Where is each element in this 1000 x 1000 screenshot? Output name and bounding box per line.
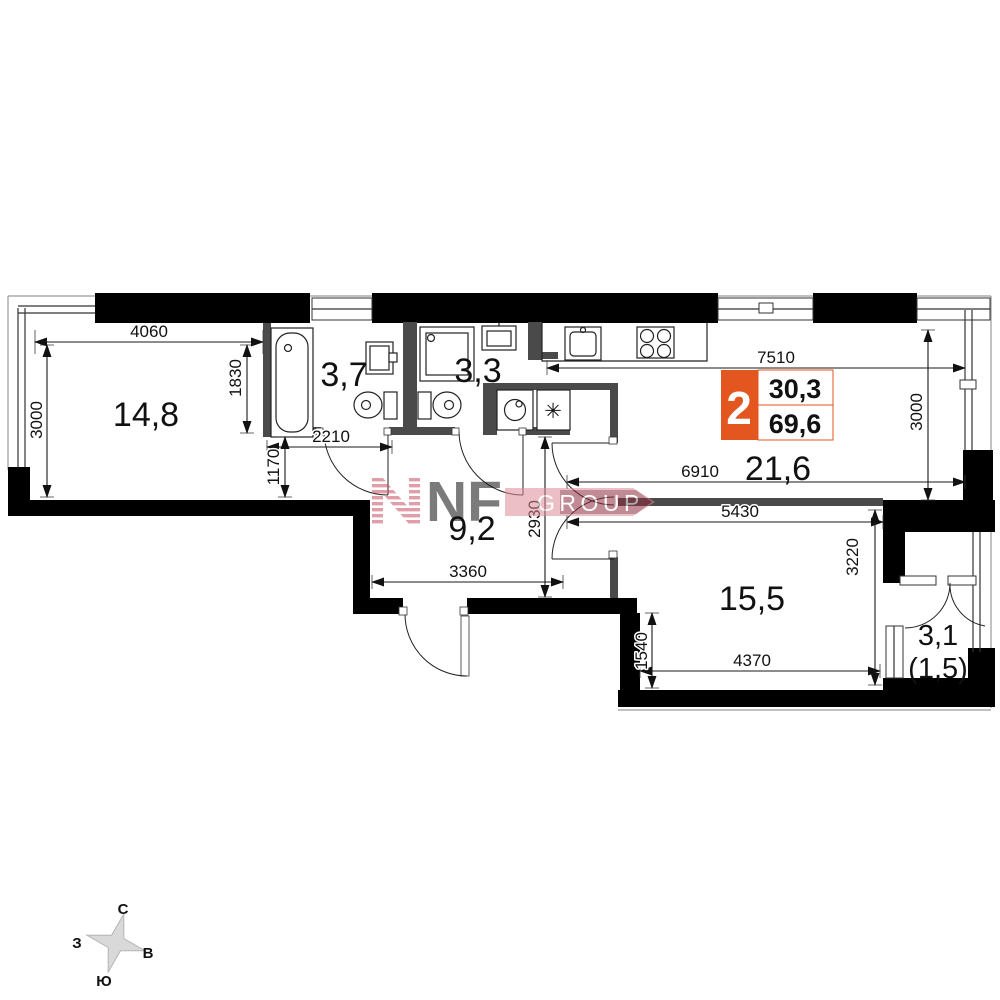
toilet-bath-small xyxy=(418,392,461,419)
partition xyxy=(417,427,455,435)
kitchen-counter xyxy=(542,323,707,361)
dim-label: 1170 xyxy=(264,449,283,486)
dim-label: 4370 xyxy=(733,651,771,670)
watermark-logo-text: NF xyxy=(426,470,502,534)
watermark: NF GROUP xyxy=(370,470,655,534)
window-top-left xyxy=(18,306,95,313)
room-label-bedroom: 15,5 xyxy=(719,580,785,618)
dim-label: 2210 xyxy=(312,427,350,446)
room-label-balcony-reduced: (1,5) xyxy=(908,653,968,685)
watermark-group-text: GROUP xyxy=(537,490,644,516)
dim-label: 5430 xyxy=(721,502,759,521)
room-label-kitchen-living: 21,6 xyxy=(745,450,811,488)
room-label-bathroom-small: 3,3 xyxy=(454,352,501,390)
washing-machine xyxy=(497,390,533,430)
sink-bath-large xyxy=(366,342,397,374)
wall xyxy=(467,598,637,614)
partition xyxy=(483,383,497,435)
compass-north: С xyxy=(118,901,129,918)
wall xyxy=(372,293,718,323)
dim-label: 3000 xyxy=(907,393,926,431)
wall xyxy=(353,500,370,614)
compass: С В Ю З xyxy=(72,901,153,990)
appliance-symbol: ✳ xyxy=(544,400,562,423)
compass-south: Ю xyxy=(96,973,111,990)
partition xyxy=(403,322,417,435)
window-left xyxy=(18,308,25,467)
wall xyxy=(903,500,995,532)
partition xyxy=(610,383,618,443)
dim-label: 1540 xyxy=(632,632,651,670)
apartment-badge: 2 30,3 69,6 xyxy=(721,370,833,440)
sink-bath-small xyxy=(482,322,516,350)
dim-label: 4060 xyxy=(130,322,168,341)
badge-rooms-count: 2 xyxy=(726,382,752,434)
compass-west: З xyxy=(72,935,81,952)
compass-east: В xyxy=(143,945,154,962)
partition xyxy=(263,323,271,437)
wall xyxy=(95,293,310,323)
room-label-bathroom-large: 3,7 xyxy=(320,356,367,394)
dim-label: 7510 xyxy=(757,348,795,367)
dim-label: 6910 xyxy=(681,462,719,481)
window-balcony-right xyxy=(973,532,980,652)
dim-label: 3360 xyxy=(449,562,487,581)
toilet-bath-large xyxy=(354,392,397,419)
room-label-living: 14,8 xyxy=(113,396,179,434)
wall xyxy=(618,690,888,707)
room-label-balcony: 3,1 xyxy=(918,620,958,652)
partition xyxy=(495,383,618,390)
window-mullion xyxy=(960,380,976,389)
wall xyxy=(883,500,905,583)
balcony-frame xyxy=(948,576,976,585)
bathtub xyxy=(271,328,313,437)
partition xyxy=(528,352,558,359)
wall xyxy=(813,293,917,323)
wall xyxy=(8,500,370,516)
window-mullion xyxy=(759,303,773,313)
watermark-striped-n xyxy=(370,478,422,523)
dim-label: 1830 xyxy=(226,359,245,397)
partition xyxy=(610,557,618,598)
wall xyxy=(963,450,993,502)
compass-star xyxy=(87,914,145,972)
dim-label: 3000 xyxy=(27,401,46,439)
entrance-door xyxy=(405,614,469,676)
badge-total-area: 69,6 xyxy=(769,409,822,439)
wall xyxy=(968,648,995,690)
wall xyxy=(353,598,403,614)
badge-living-area: 30,3 xyxy=(769,374,822,404)
appliance-slot: ✳ xyxy=(537,390,570,430)
balcony-frame xyxy=(900,576,936,585)
floor-plan: ✳ xyxy=(0,0,1000,1000)
dim-label: 3220 xyxy=(843,538,862,576)
